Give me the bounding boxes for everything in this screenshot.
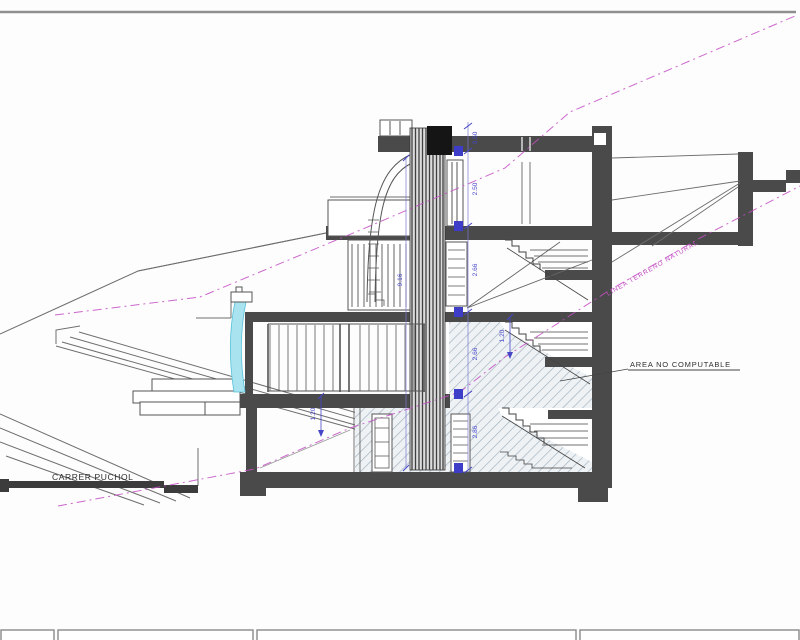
dim-terrace: 1.20 (310, 407, 317, 420)
footing-left (240, 474, 266, 496)
shaft-cap (427, 126, 452, 155)
street-label: CARRER PUCHOL (52, 472, 133, 482)
dim-first-floor: 2.66 (472, 347, 479, 360)
title-block-cell (1, 630, 54, 640)
level-marker (454, 389, 463, 399)
water-cascade (230, 302, 246, 392)
window-mullions (268, 324, 425, 392)
title-block-cell (58, 630, 253, 640)
terrace-steps (133, 379, 240, 415)
door-second-floor (446, 242, 467, 306)
pool-spout (231, 292, 252, 302)
title-block-cell (580, 630, 799, 640)
dim-total: 9.16 (397, 273, 404, 286)
retaining-terrain-lines (612, 154, 740, 262)
parapet-notch (594, 133, 606, 145)
area-label: AREA NO COMPUTABLE (630, 360, 731, 369)
right-wall (592, 136, 612, 474)
drawing-sheet: 0.50 2.50 2.66 2.66 2.86 9.16 1.20 1.20 … (0, 0, 800, 640)
level-marker (454, 221, 463, 231)
left-wall-mid (245, 316, 253, 396)
dim-basement: 2.86 (472, 425, 479, 438)
dim-second-floor: 2.66 (472, 263, 479, 276)
left-wall-base (246, 396, 257, 474)
level-marker (454, 307, 463, 317)
upper-left-room (328, 200, 412, 236)
dim-top-floor: 2.50 (472, 182, 479, 195)
footing-right (578, 480, 608, 502)
landing-mid (545, 357, 592, 367)
dim-parapet: 0.50 (472, 131, 479, 144)
level-marker (454, 146, 463, 156)
level-marker (454, 463, 463, 473)
retaining-wall (738, 152, 753, 246)
title-block-cell (257, 630, 576, 640)
retaining-slab (610, 232, 750, 245)
foundation-slab (240, 472, 612, 488)
door-top-floor (447, 160, 463, 226)
section-drawing: 0.50 2.50 2.66 2.66 2.86 9.16 1.20 1.20 … (0, 0, 800, 640)
dim-stair: 1.20 (499, 329, 506, 342)
title-block (1, 630, 799, 640)
terrain-line-label: LINEA TERRENO NATURAL (606, 239, 700, 297)
landing-lower (548, 410, 592, 419)
roof-parapet-left (380, 120, 412, 136)
